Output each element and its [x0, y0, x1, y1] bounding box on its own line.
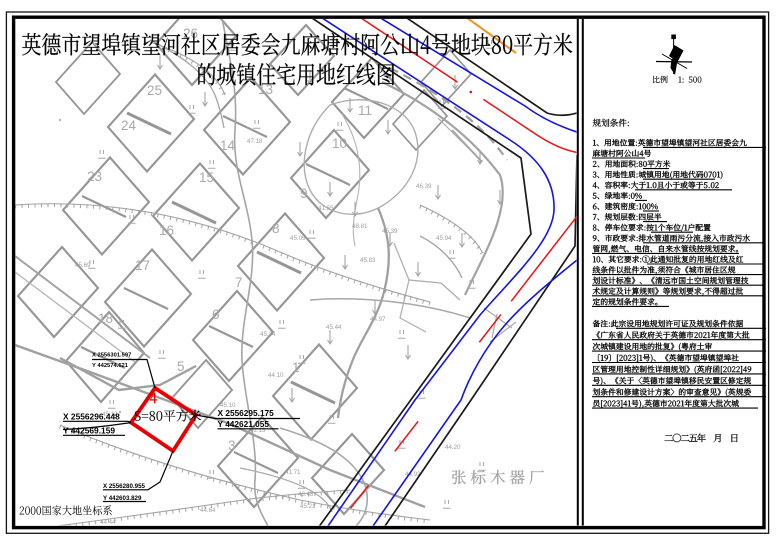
svg-text:11: 11: [358, 103, 372, 118]
svg-text:44.10: 44.10: [268, 372, 284, 379]
svg-text:44.20: 44.20: [445, 444, 461, 451]
svg-text:45.34: 45.34: [260, 331, 276, 338]
svg-text:X 2556296.448: X 2556296.448: [63, 412, 120, 422]
svg-text:23: 23: [87, 169, 102, 184]
svg-text:45.83: 45.83: [360, 257, 376, 264]
svg-text:17: 17: [135, 258, 150, 273]
svg-text:X 2556295.175: X 2556295.175: [218, 408, 275, 418]
svg-text:43.48: 43.48: [298, 491, 314, 498]
svg-text:8: 8: [272, 221, 280, 236]
svg-text:14: 14: [220, 138, 236, 153]
svg-text:X 2556301.597: X 2556301.597: [92, 353, 131, 359]
svg-text:15: 15: [199, 170, 214, 185]
svg-text:X 2556280.955: X 2556280.955: [103, 483, 146, 490]
svg-text:45.94: 45.94: [436, 235, 452, 242]
svg-text:41.55: 41.55: [318, 205, 334, 212]
svg-text:6: 6: [212, 307, 220, 322]
svg-text:9: 9: [300, 186, 308, 201]
svg-text:25: 25: [147, 83, 162, 98]
svg-text:48.81: 48.81: [352, 223, 368, 230]
svg-text:16: 16: [159, 223, 174, 238]
svg-text:45.69: 45.69: [75, 262, 91, 269]
svg-text:7: 7: [235, 275, 243, 290]
svg-text:18: 18: [98, 311, 113, 326]
svg-text:Y 442603.829: Y 442603.829: [103, 495, 142, 502]
svg-text:45.05: 45.05: [290, 235, 306, 242]
svg-text:44.97: 44.97: [370, 316, 386, 323]
svg-text:3: 3: [228, 438, 236, 453]
svg-text:44.44: 44.44: [100, 519, 116, 526]
svg-text:10: 10: [332, 136, 347, 151]
svg-text:45.44: 45.44: [326, 324, 342, 331]
svg-text:Y 442569.159: Y 442569.159: [63, 426, 115, 436]
svg-text:24: 24: [121, 118, 137, 133]
svg-text:47.18: 47.18: [247, 138, 263, 145]
svg-text:41.71: 41.71: [285, 469, 301, 476]
svg-text:Y 442574.621: Y 442574.621: [92, 363, 129, 369]
svg-text:Y 442621.055: Y 442621.055: [218, 419, 270, 429]
svg-text:45.21: 45.21: [300, 503, 316, 510]
svg-text:1: 1: [292, 360, 300, 375]
svg-text:5: 5: [177, 359, 185, 374]
svg-text:46.39: 46.39: [416, 183, 432, 190]
svg-text:45.39: 45.39: [382, 228, 398, 235]
svg-text:44.64: 44.64: [200, 507, 216, 514]
